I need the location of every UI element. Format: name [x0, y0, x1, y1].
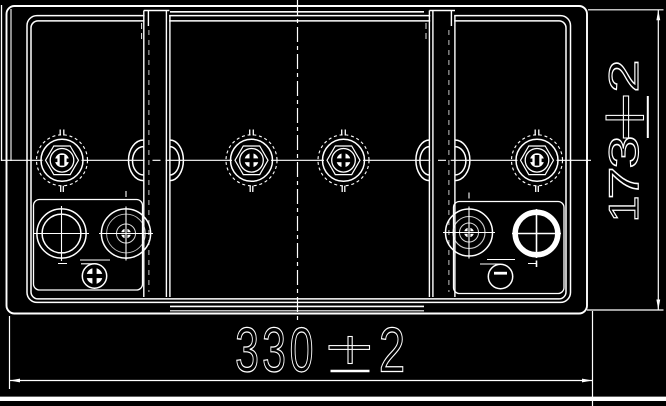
svg-text:2: 2	[600, 59, 647, 92]
svg-text:3: 3	[235, 315, 259, 385]
svg-text:7: 7	[600, 166, 647, 199]
svg-text:0: 0	[290, 315, 314, 385]
svg-text:3: 3	[600, 135, 647, 168]
svg-text:3: 3	[262, 315, 286, 385]
svg-text:2: 2	[379, 315, 405, 385]
